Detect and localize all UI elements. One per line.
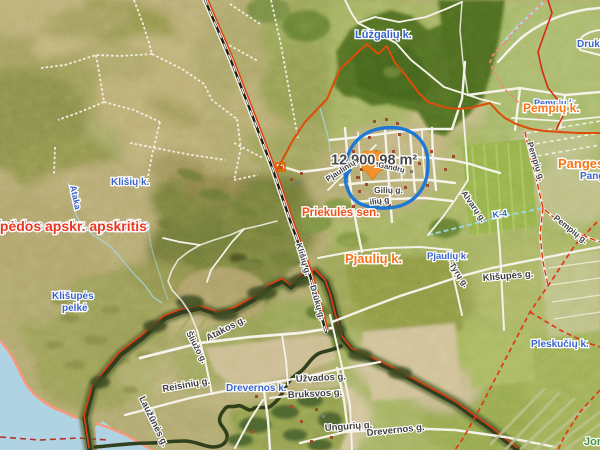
svg-text:Pang: Pang bbox=[580, 171, 600, 182]
svg-text:Klišupės: Klišupės bbox=[52, 291, 94, 302]
svg-text:Klišių k.: Klišių k. bbox=[111, 177, 150, 188]
svg-text:Pangesai k.: Pangesai k. bbox=[558, 156, 600, 171]
svg-text:Pjaulių k.: Pjaulių k. bbox=[345, 251, 402, 266]
svg-text:Jonų k.: Jonų k. bbox=[584, 436, 600, 448]
svg-text:Drukių k.: Drukių k. bbox=[577, 39, 600, 50]
svg-text:Lūžgalių k.: Lūžgalių k. bbox=[355, 29, 412, 41]
svg-text:Priekulės sen.: Priekulės sen. bbox=[302, 207, 379, 219]
svg-text:K-4: K-4 bbox=[492, 208, 508, 220]
svg-text:Pjaulių k: Pjaulių k bbox=[427, 251, 467, 262]
svg-text:Drevernos k.: Drevernos k. bbox=[226, 383, 287, 394]
svg-text:Pleskučių k.: Pleskučių k. bbox=[531, 339, 589, 350]
svg-text:ipėdos apskr. apskritis: ipėdos apskr. apskritis bbox=[0, 218, 147, 234]
svg-text:Pempių k.: Pempių k. bbox=[523, 101, 580, 115]
svg-text:pelkė: pelkė bbox=[62, 303, 88, 314]
